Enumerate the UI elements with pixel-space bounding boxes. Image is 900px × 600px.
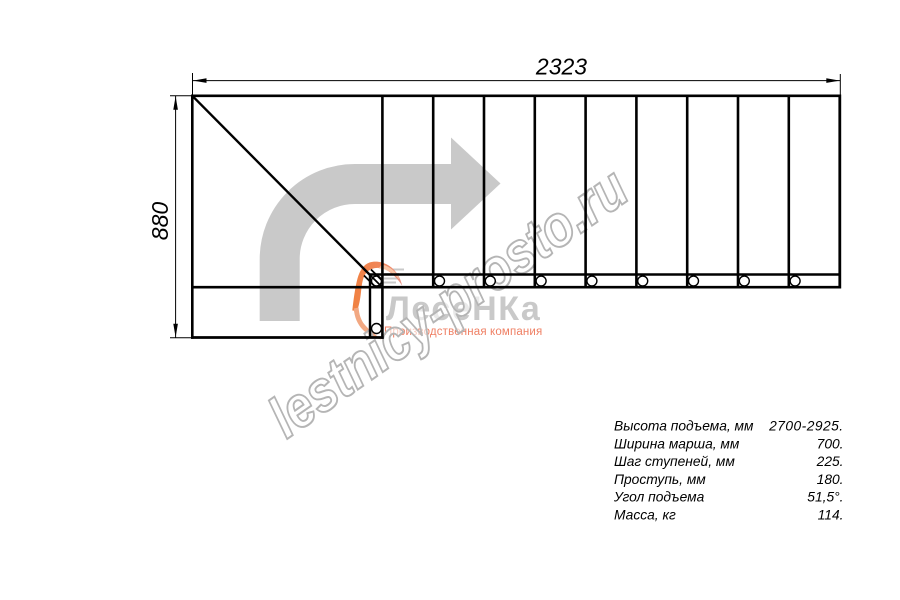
svg-text:700.: 700. [817, 436, 844, 451]
svg-text:Проступь, мм: Проступь, мм [614, 472, 706, 487]
svg-text:880: 880 [147, 202, 173, 241]
svg-text:2700-2925.: 2700-2925. [768, 419, 843, 434]
svg-text:180.: 180. [817, 472, 844, 487]
svg-text:Ширина марша, мм: Ширина марша, мм [614, 436, 740, 451]
svg-text:Масса, кг: Масса, кг [614, 508, 676, 523]
svg-text:114.: 114. [818, 508, 844, 523]
svg-text:225.: 225. [816, 454, 844, 469]
svg-text:51,5°.: 51,5°. [807, 490, 843, 505]
svg-text:Угол подъема: Угол подъема [613, 490, 705, 505]
svg-text:2323: 2323 [535, 54, 587, 80]
svg-text:Шаг ступеней, мм: Шаг ступеней, мм [614, 454, 735, 469]
svg-text:Высота подъема, мм: Высота подъема, мм [614, 419, 754, 434]
